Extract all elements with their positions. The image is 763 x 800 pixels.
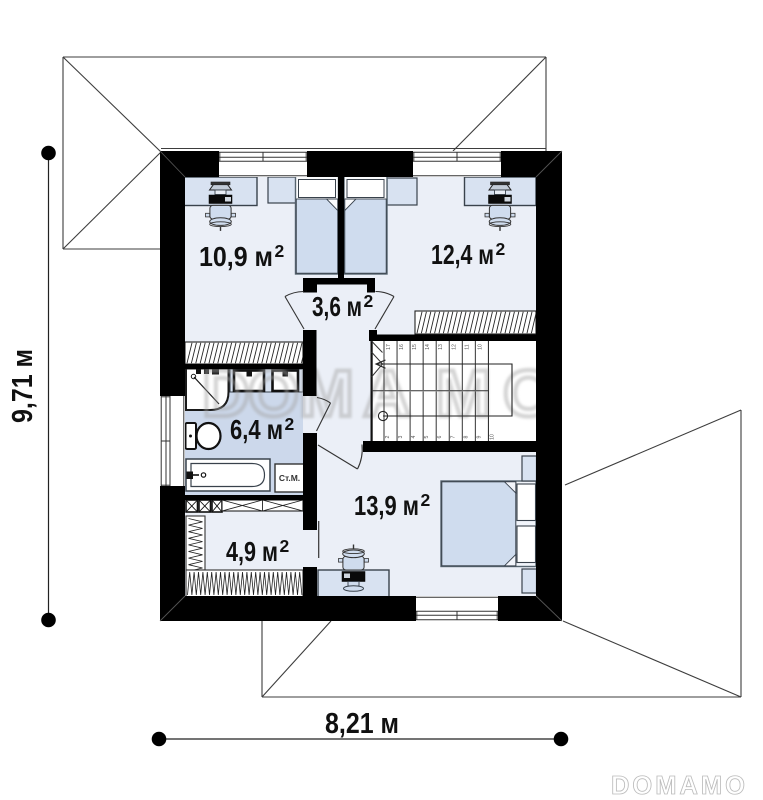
svg-text:8: 8 xyxy=(463,435,469,438)
svg-text:10: 10 xyxy=(489,434,495,440)
svg-text:3,6 м: 3,6 м xyxy=(312,291,362,322)
svg-text:10,9 м: 10,9 м xyxy=(199,241,273,272)
svg-text:11: 11 xyxy=(464,344,470,349)
svg-text:7: 7 xyxy=(450,435,456,438)
svg-text:3: 3 xyxy=(398,435,404,438)
svg-text:6,4 м: 6,4 м xyxy=(230,414,283,445)
svg-text:8,21 м: 8,21 м xyxy=(325,708,399,740)
svg-text:2: 2 xyxy=(385,435,391,438)
svg-text:6: 6 xyxy=(437,435,443,438)
svg-text:2: 2 xyxy=(496,239,506,259)
svg-text:5: 5 xyxy=(424,435,430,438)
svg-text:10: 10 xyxy=(477,344,483,350)
svg-text:12,4 м: 12,4 м xyxy=(431,239,494,270)
svg-text:2: 2 xyxy=(421,490,431,510)
svg-text:9: 9 xyxy=(476,435,482,438)
svg-text:15: 15 xyxy=(412,344,418,350)
svg-text:13,9 м: 13,9 м xyxy=(354,490,419,521)
svg-text:12: 12 xyxy=(451,344,457,350)
svg-text:2: 2 xyxy=(285,414,295,434)
svg-text:2: 2 xyxy=(364,291,374,311)
svg-text:14: 14 xyxy=(425,344,431,350)
svg-text:4,9 м: 4,9 м xyxy=(226,536,278,567)
svg-text:16: 16 xyxy=(399,344,405,350)
svg-text:Ст.М.: Ст.М. xyxy=(279,473,300,483)
svg-text:17: 17 xyxy=(386,344,392,350)
svg-text:2: 2 xyxy=(280,536,290,556)
svg-text:M: M xyxy=(436,356,491,430)
svg-text:2: 2 xyxy=(275,241,285,261)
svg-text:9,71 м: 9,71 м xyxy=(7,349,39,423)
svg-text:13: 13 xyxy=(438,344,444,350)
svg-text:4: 4 xyxy=(411,435,417,438)
